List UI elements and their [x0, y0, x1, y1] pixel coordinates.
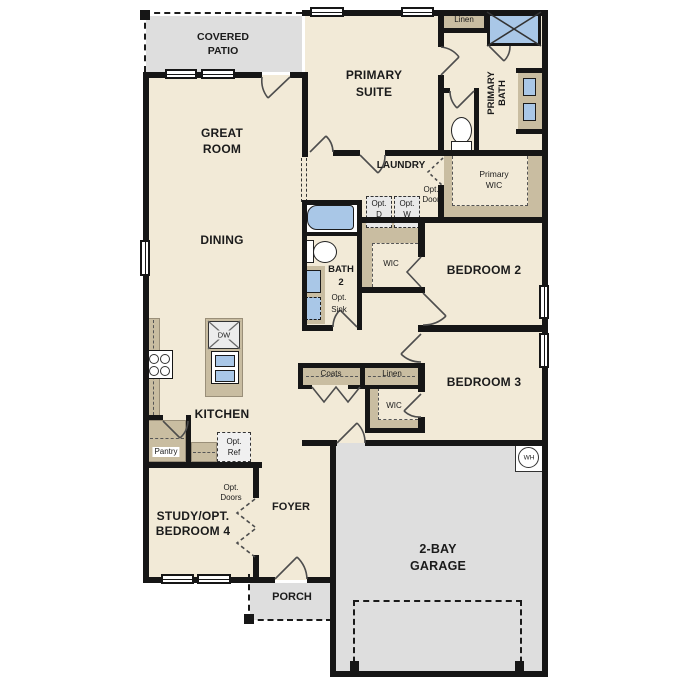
patio-door — [262, 77, 290, 98]
label-primary-bath: PRIMARYBATH — [486, 71, 508, 114]
label-laundry: LAUNDRY — [377, 159, 426, 173]
label-coats: Coats — [321, 369, 342, 379]
primary-bath-door — [441, 47, 459, 75]
label-opt-washer: Opt.W — [399, 198, 414, 220]
label-garage: 2-BAYGARAGE — [410, 541, 466, 575]
label-opt-dryer: Opt.D — [371, 198, 386, 220]
label-bedroom3: BEDROOM 3 — [447, 374, 521, 390]
door-swing-overlay — [0, 0, 687, 687]
floor-plan: COVEREDPATIO GREATROOM PRIMARYSUITE DINI… — [0, 0, 687, 687]
wic2-bifold-door — [407, 257, 421, 287]
wic3-door — [404, 394, 421, 417]
label-wic-bedroom2: WIC — [383, 259, 399, 269]
label-porch: PORCH — [272, 591, 312, 603]
primary-suite-door — [310, 136, 333, 152]
front-door — [275, 557, 307, 579]
pantry-door — [163, 421, 188, 438]
garage-entry-door — [337, 423, 365, 443]
label-opt-door: Opt.Door — [422, 185, 439, 205]
label-great-room: GREATROOM — [201, 125, 243, 157]
label-opt-doors: Opt.Doors — [220, 483, 241, 503]
label-linen-hall: Linen — [382, 369, 402, 379]
label-kitchen: KITCHEN — [195, 406, 250, 422]
label-linen-upper: Linen — [454, 15, 474, 25]
label-dining: DINING — [200, 232, 243, 248]
label-primary-suite: PRIMARYSUITE — [346, 67, 402, 101]
label-bath2: BATH2 — [328, 263, 354, 289]
bedroom3-door — [401, 334, 421, 362]
label-study: STUDY/OPT.BEDROOM 4 — [156, 509, 230, 539]
shower-x-mark — [487, 12, 541, 46]
label-water-heater: WH — [524, 455, 535, 462]
shower-door — [489, 46, 510, 61]
label-opt-sink: Opt.Sink — [331, 292, 347, 316]
label-bedroom2: BEDROOM 2 — [447, 262, 521, 278]
label-wic-bedroom3: WIC — [386, 401, 402, 411]
label-primary-wic: PrimaryWIC — [479, 169, 508, 191]
label-dishwasher: DW — [217, 331, 232, 340]
bedroom2-door — [423, 293, 446, 325]
label-pantry: Pantry — [152, 447, 179, 457]
label-covered-patio: COVEREDPATIO — [197, 30, 249, 58]
label-opt-ref: Opt.Ref — [226, 436, 241, 458]
coats-bifold-door — [312, 387, 360, 402]
opt-door-dashed — [428, 158, 443, 186]
opt-doors-dashed — [237, 499, 255, 557]
label-foyer: FOYER — [272, 501, 310, 513]
toilet-room-door — [450, 91, 474, 108]
